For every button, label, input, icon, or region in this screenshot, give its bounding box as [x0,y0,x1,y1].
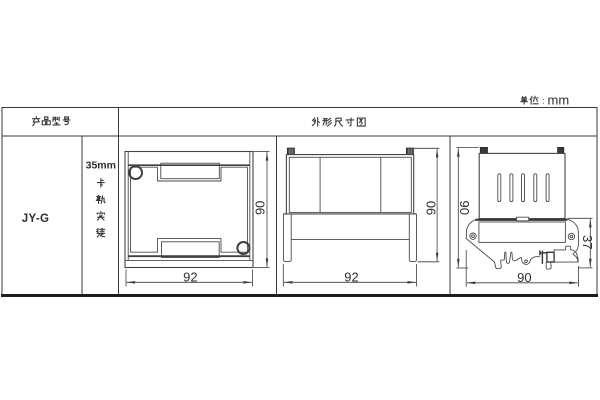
svg-text:37: 37 [580,235,595,249]
svg-text:92: 92 [344,269,358,284]
svg-text:90: 90 [517,270,531,285]
svg-text:JY-G: JY-G [22,213,49,225]
svg-text:90: 90 [252,201,267,215]
svg-text:90: 90 [457,201,472,215]
svg-text:35mm: 35mm [86,160,116,172]
svg-text:92: 92 [183,269,197,284]
svg-text:90: 90 [424,201,439,215]
svg-text:mm: mm [548,93,570,108]
